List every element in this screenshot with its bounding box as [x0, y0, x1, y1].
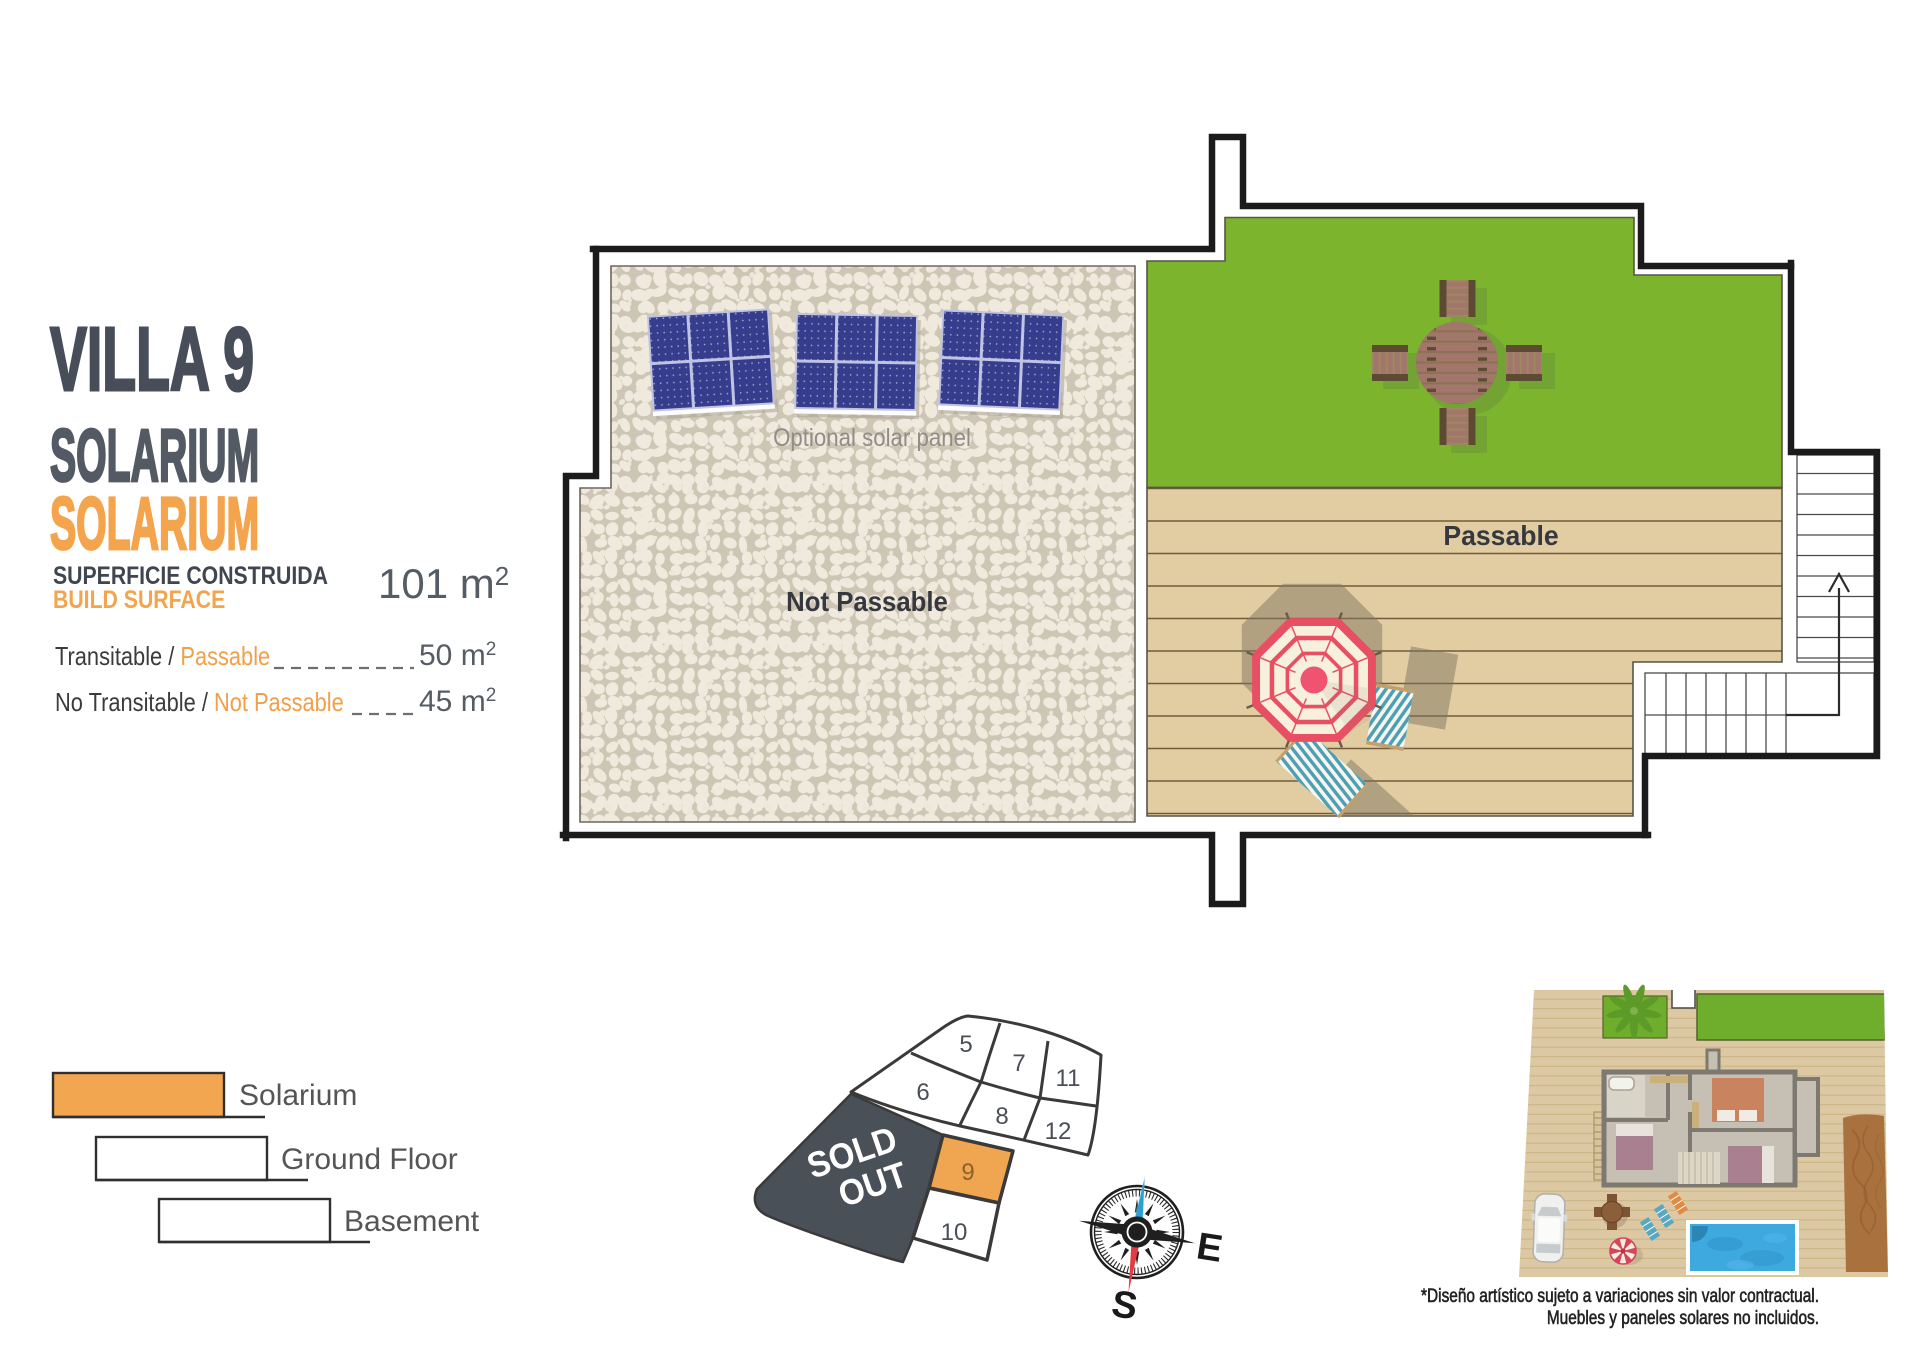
svg-text:Passable: Passable: [1443, 519, 1558, 551]
svg-text:Not Passable: Not Passable: [786, 586, 948, 617]
svg-text:*Diseño artístico sujeto a var: *Diseño artístico sujeto a variaciones s…: [1421, 1284, 1819, 1306]
svg-text:VILLA 9: VILLA 9: [50, 308, 254, 409]
svg-text:SOLARIUM: SOLARIUM: [50, 482, 259, 566]
svg-text:7: 7: [1012, 1050, 1025, 1077]
svg-text:101 m2: 101 m2: [378, 560, 509, 607]
svg-text:12: 12: [1045, 1118, 1072, 1145]
svg-text:6: 6: [916, 1079, 929, 1106]
svg-text:Basement: Basement: [344, 1205, 480, 1238]
svg-text:8: 8: [995, 1103, 1008, 1130]
svg-text:Optional solar panel: Optional solar panel: [773, 425, 971, 452]
svg-text:No Transitable / Not Passable: No Transitable / Not Passable: [55, 688, 344, 717]
svg-text:9: 9: [961, 1159, 974, 1186]
svg-text:11: 11: [1056, 1065, 1081, 1092]
svg-text:Muebles y paneles solares no i: Muebles y paneles solares no incluidos.: [1547, 1306, 1819, 1328]
svg-text:Solarium: Solarium: [239, 1079, 357, 1112]
svg-text:Ground Floor: Ground Floor: [281, 1143, 458, 1176]
svg-text:50 m2: 50 m2: [419, 639, 496, 672]
svg-text:5: 5: [959, 1031, 972, 1058]
svg-text:10: 10: [941, 1219, 968, 1246]
svg-text:Transitable / Passable: Transitable / Passable: [55, 642, 270, 671]
svg-text:45 m2: 45 m2: [419, 685, 496, 718]
svg-text:BUILD SURFACE: BUILD SURFACE: [53, 585, 225, 613]
